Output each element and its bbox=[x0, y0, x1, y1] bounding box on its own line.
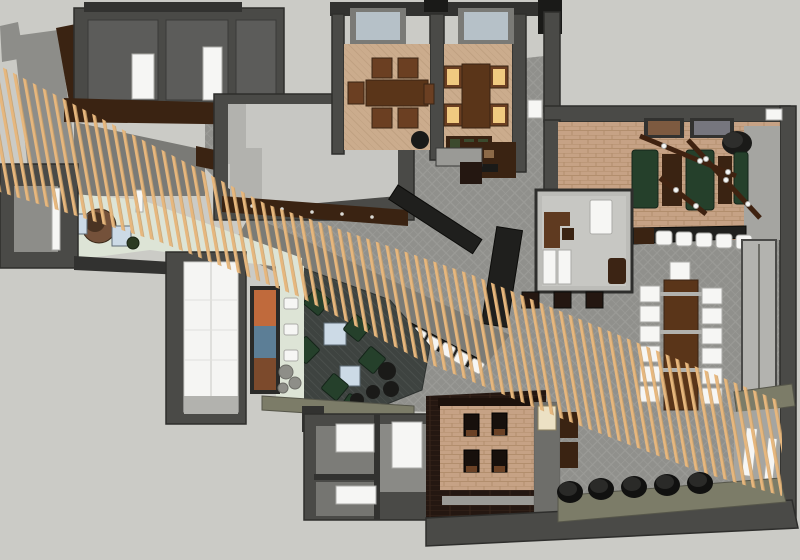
door-opening bbox=[392, 422, 422, 468]
door-opening bbox=[766, 109, 782, 120]
office-table bbox=[590, 200, 612, 234]
communal-chair bbox=[702, 288, 722, 304]
communal-chair bbox=[640, 306, 660, 322]
gallery-bench bbox=[284, 324, 298, 335]
nook-booth-seat bbox=[494, 466, 505, 472]
cylinder-pouf-top bbox=[623, 477, 641, 491]
round-pouf bbox=[366, 385, 380, 399]
picture-art bbox=[648, 121, 680, 135]
nook-booth-seat bbox=[466, 430, 477, 436]
stool-counter-end bbox=[634, 228, 654, 244]
communal-chair bbox=[640, 326, 660, 342]
nook-brick-floor bbox=[440, 406, 534, 490]
cylinder-pouf-top bbox=[559, 482, 577, 496]
nook-bench bbox=[442, 496, 534, 505]
mural-art bbox=[254, 290, 276, 326]
restroom-partition bbox=[314, 474, 378, 480]
round-pouf bbox=[378, 362, 396, 380]
dining-chair bbox=[348, 82, 364, 104]
table-metal-band bbox=[660, 330, 702, 334]
decor-stone bbox=[289, 377, 301, 389]
wine-shelf bbox=[560, 442, 578, 468]
gallery-bench bbox=[284, 298, 298, 309]
communal-head-chair bbox=[670, 262, 690, 280]
lit-chair-cushion bbox=[447, 107, 459, 123]
cylinder-pouf-top bbox=[689, 473, 707, 487]
connector-wall bbox=[544, 12, 560, 112]
skylight-glass bbox=[356, 12, 400, 40]
dining-wall bbox=[332, 14, 344, 154]
floorplan-render: Top-down 3D rendering of a restaurant in… bbox=[0, 0, 800, 560]
pendant-light bbox=[674, 188, 679, 193]
pendant-light bbox=[698, 159, 703, 164]
decor-stone bbox=[278, 383, 288, 393]
dining-chair bbox=[398, 108, 418, 128]
stair-landing bbox=[184, 396, 238, 414]
pendant-light bbox=[746, 202, 751, 207]
door-opening bbox=[203, 47, 222, 100]
office-desk-return bbox=[544, 212, 570, 226]
communal-chair bbox=[702, 328, 722, 344]
green-booth bbox=[632, 150, 658, 208]
counter-stool bbox=[656, 231, 672, 245]
counter-stool bbox=[716, 234, 732, 248]
pendant-light bbox=[724, 178, 729, 183]
hostess-stand-base bbox=[460, 162, 482, 184]
decor-stone bbox=[279, 365, 293, 379]
dining-chair bbox=[424, 84, 434, 104]
cylinder-pouf-top bbox=[656, 475, 674, 489]
roof-vent bbox=[424, 0, 448, 12]
dining-table bbox=[462, 64, 490, 128]
communal-chair bbox=[702, 308, 722, 324]
round-pouf bbox=[383, 381, 399, 397]
door-opening bbox=[528, 100, 542, 118]
hall-stool bbox=[554, 292, 571, 308]
dining-chair bbox=[372, 108, 392, 128]
table-metal-band bbox=[660, 292, 702, 296]
counter-stool bbox=[676, 232, 692, 246]
lit-chair-cushion bbox=[493, 69, 505, 85]
nook-booth-seat bbox=[466, 466, 477, 472]
floorplan-svg: Top-down 3D rendering of a restaurant in… bbox=[0, 0, 800, 560]
pendant-light bbox=[726, 170, 731, 175]
communal-chair bbox=[640, 286, 660, 302]
communal-chair bbox=[702, 348, 722, 364]
mural-art bbox=[254, 326, 276, 358]
office-lounger bbox=[558, 250, 571, 284]
office-armchair bbox=[608, 258, 626, 284]
dining-chair bbox=[398, 58, 418, 78]
hall-stool bbox=[586, 292, 603, 308]
mural-art bbox=[254, 358, 276, 390]
pendant-light bbox=[694, 204, 699, 209]
top-wall bbox=[84, 2, 242, 12]
black-cylinder-top bbox=[723, 132, 743, 148]
blue-side-table bbox=[324, 323, 346, 345]
nook-booth-seat bbox=[494, 429, 505, 435]
right-exterior-wall bbox=[780, 106, 796, 526]
pendant-light bbox=[704, 157, 709, 162]
plant bbox=[127, 237, 139, 249]
round-table bbox=[411, 131, 429, 149]
counter-stool bbox=[696, 233, 712, 247]
pendant-light bbox=[662, 144, 667, 149]
skylight-glass bbox=[464, 12, 508, 40]
pass-light bbox=[370, 215, 374, 219]
cylinder-pouf-top bbox=[590, 479, 608, 493]
pass-light bbox=[310, 210, 314, 214]
dining-table bbox=[366, 80, 428, 106]
picture-art bbox=[694, 121, 730, 135]
gallery-bench bbox=[284, 350, 298, 361]
door-opening bbox=[132, 54, 154, 99]
service-room-floor bbox=[236, 20, 276, 100]
door-opening bbox=[336, 424, 374, 452]
lit-chair-cushion bbox=[447, 69, 459, 85]
office-lounger bbox=[543, 250, 556, 284]
dining-chair bbox=[372, 58, 392, 78]
door-opening bbox=[336, 486, 376, 504]
planter-greens bbox=[450, 139, 460, 148]
pass-light bbox=[340, 212, 344, 216]
lit-chair-cushion bbox=[493, 107, 505, 123]
desk-chair bbox=[562, 228, 574, 240]
cabinet-item bbox=[484, 150, 494, 158]
